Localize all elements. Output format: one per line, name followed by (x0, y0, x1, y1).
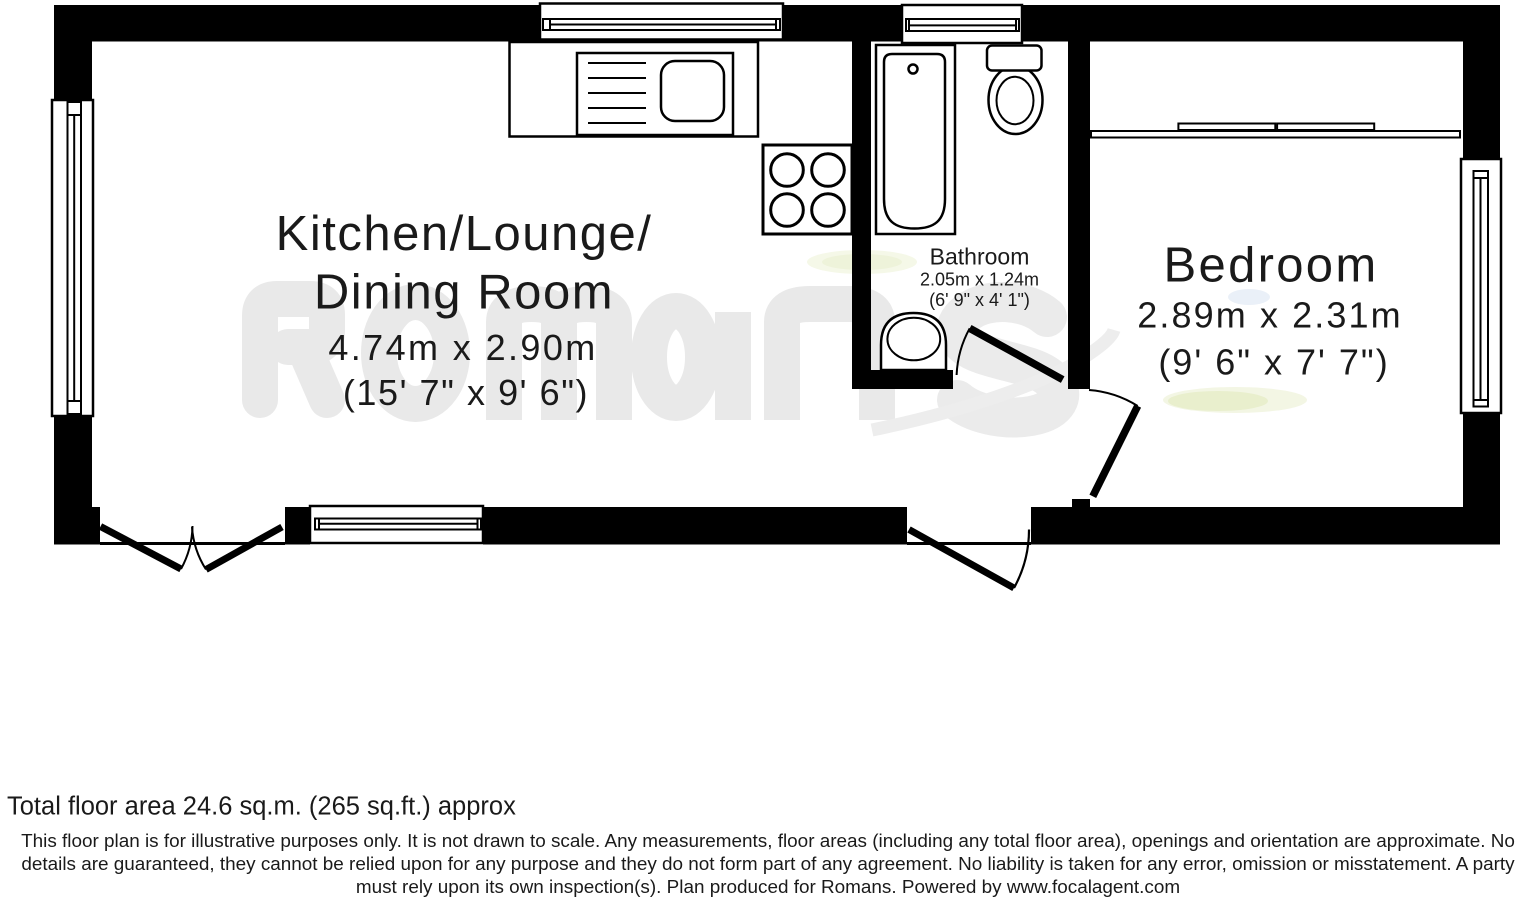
svg-text:must rely upon its own inspect: must rely upon its own inspection(s). Pl… (356, 877, 1180, 898)
svg-text:Total floor area 24.6 sq.m. (2: Total floor area 24.6 sq.m. (265 sq.ft.)… (7, 793, 516, 821)
svg-text:(15' 7" x 9' 6"): (15' 7" x 9' 6") (343, 372, 589, 413)
svg-text:This floor plan is for illustr: This floor plan is for illustrative purp… (21, 831, 1515, 852)
svg-text:2.89m x 2.31m: 2.89m x 2.31m (1137, 295, 1402, 336)
svg-text:Bedroom: Bedroom (1164, 239, 1379, 293)
svg-text:2.05m x 1.24m: 2.05m x 1.24m (920, 269, 1039, 289)
svg-text:Dining Room: Dining Room (314, 266, 614, 320)
svg-text:Kitchen/Lounge/: Kitchen/Lounge/ (276, 207, 653, 261)
svg-text:(9' 6" x 7' 7"): (9' 6" x 7' 7") (1158, 342, 1389, 383)
svg-text:(6' 9" x 4' 1"): (6' 9" x 4' 1") (929, 290, 1030, 310)
svg-text:4.74m x 2.90m: 4.74m x 2.90m (328, 327, 597, 368)
svg-text:details are guaranteed, they c: details are guaranteed, they cannot be r… (21, 854, 1515, 875)
svg-text:Bathroom: Bathroom (930, 243, 1030, 269)
